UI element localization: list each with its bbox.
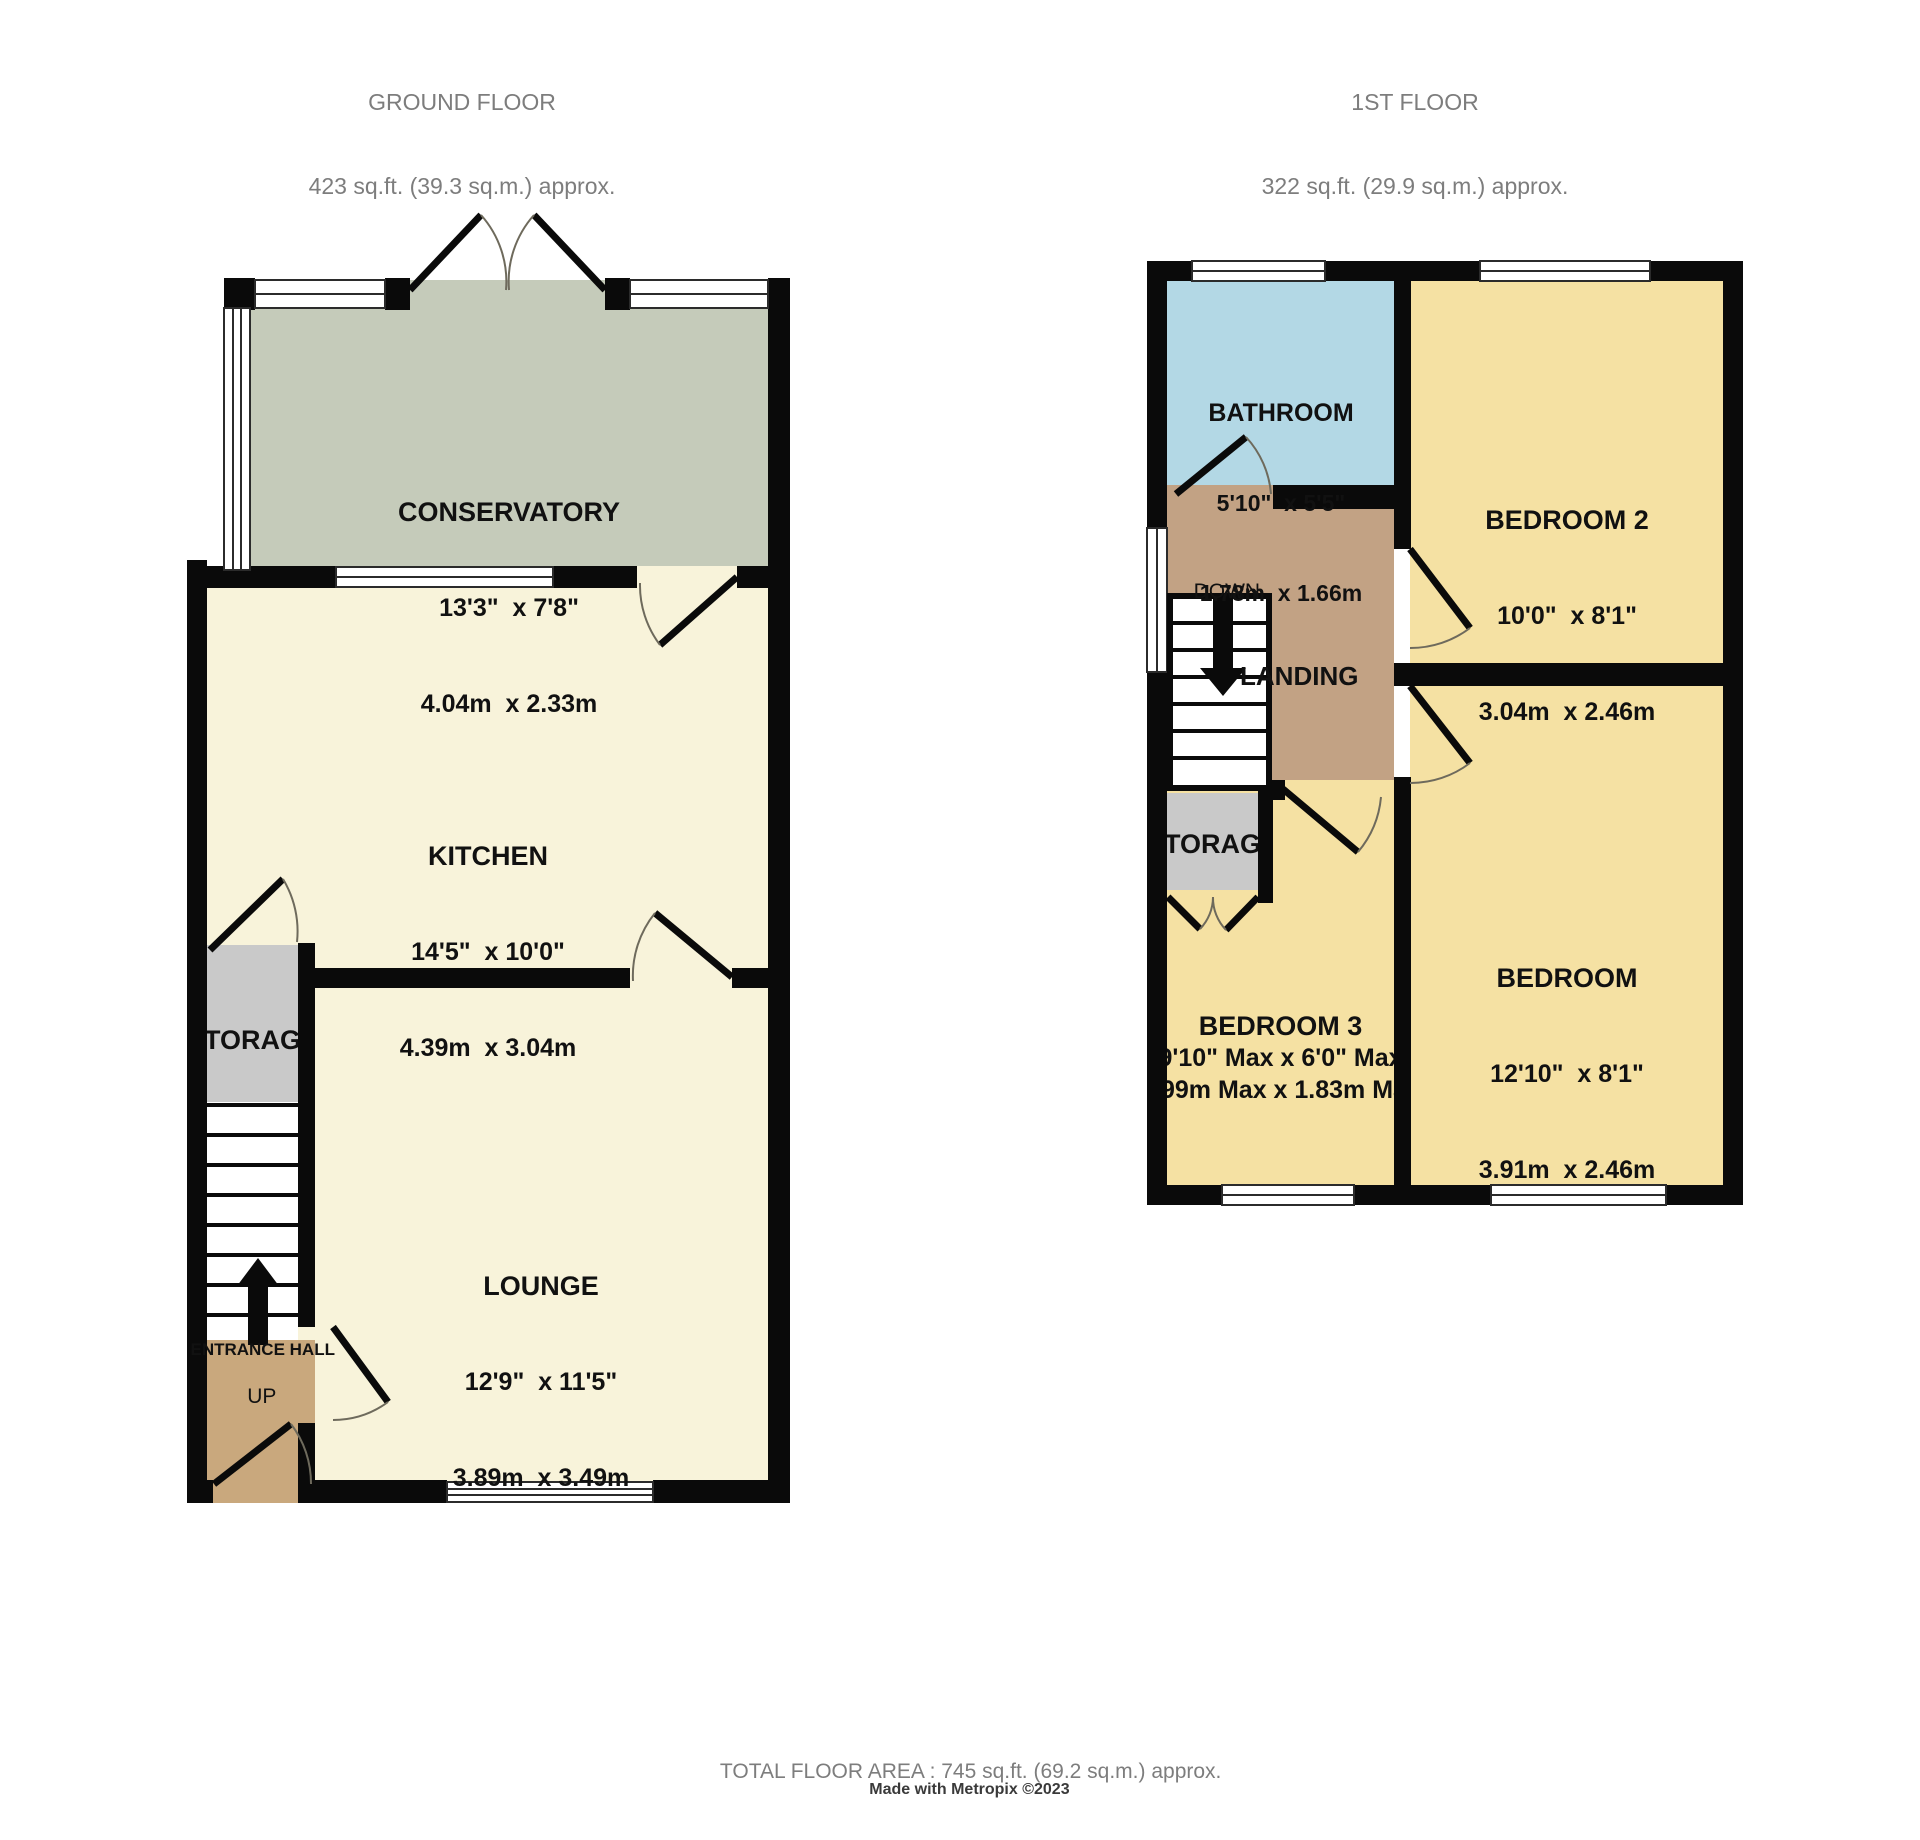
ground-floor-title: GROUND FLOOR xyxy=(309,88,616,116)
landing-label: LANDING xyxy=(1226,630,1359,692)
bedroom-label: BEDROOM 12'10" x 8'1" 3.91m x 2.46m xyxy=(1479,898,1656,1218)
bedroom3-window xyxy=(1222,1185,1354,1205)
storage-ground-label: STORAGE xyxy=(207,1022,298,1058)
storage-first-label: STORAGE xyxy=(1167,826,1258,862)
conservatory-label: CONSERVATORY 13'3" x 7'8" 4.04m x 2.33m xyxy=(398,432,620,752)
lounge-label: LOUNGE 12'9" x 11'5" 3.89m x 3.49m xyxy=(453,1206,630,1526)
down-label: DOWN xyxy=(1182,556,1260,604)
conservatory-window-top-left xyxy=(255,280,385,308)
first-floor-header: 1ST FLOOR 322 sq.ft. (29.9 sq.m.) approx… xyxy=(1262,32,1569,228)
first-floor-title: 1ST FLOOR xyxy=(1262,88,1569,116)
metropix-credit: Made with Metropix ©2023 xyxy=(860,1763,1069,1799)
ground-floor-header: GROUND FLOOR 423 sq.ft. (39.3 sq.m.) app… xyxy=(309,32,616,228)
bedroom2-window xyxy=(1480,261,1650,281)
landing-window xyxy=(1147,528,1167,672)
bedroom2-label: BEDROOM 2 10'0" x 8'1" 3.04m x 2.46m xyxy=(1479,440,1656,760)
up-label: UP xyxy=(236,1361,277,1409)
entrance-hall-label: ENTRANCE HALL xyxy=(181,1320,335,1360)
kitchen-label: KITCHEN 14'5" x 10'0" 4.39m x 3.04m xyxy=(400,776,577,1096)
bathroom-window xyxy=(1192,261,1325,281)
ground-floor-area: 423 sq.ft. (39.3 sq.m.) approx. xyxy=(309,172,616,200)
conservatory-window-top-right xyxy=(630,280,768,308)
bedroom3-label: BEDROOM 3 9'10" Max x 6'0" Max 1.99m Max… xyxy=(1167,1008,1394,1108)
conservatory-window-left xyxy=(224,308,250,570)
first-floor-area: 322 sq.ft. (29.9 sq.m.) approx. xyxy=(1262,172,1569,200)
